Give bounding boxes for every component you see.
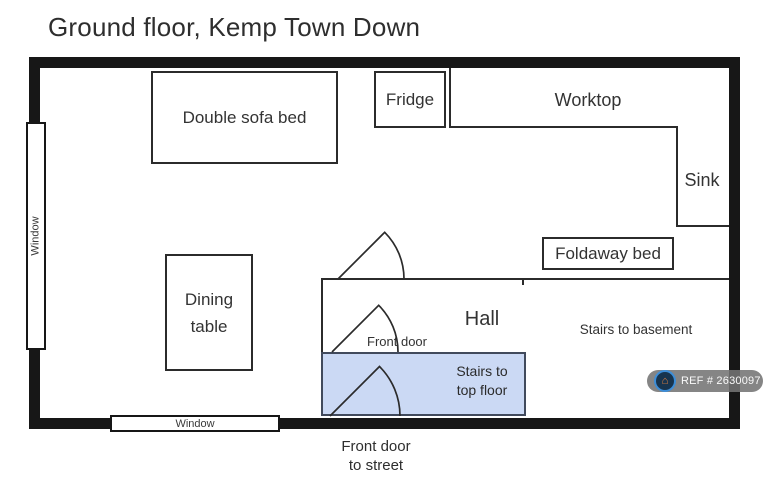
front-door-street-label: Front door to street	[316, 437, 436, 475]
street-door-arc	[330, 367, 400, 417]
front-door-street-line1: Front door	[316, 437, 436, 456]
front-door-street-line2: to street	[316, 456, 436, 475]
house-icon: ⌂	[654, 370, 676, 392]
floorplan-page: Ground floor, Kemp Town Down Double sofa…	[0, 0, 768, 489]
window-bottom: Window	[110, 415, 280, 432]
front-door-label: Front door	[367, 334, 427, 349]
ref-number: REF # 2630097	[681, 375, 761, 387]
window-left: Window	[26, 122, 46, 350]
ref-badge: ⌂ REF # 2630097	[647, 370, 763, 392]
interior-door-arc	[338, 232, 404, 279]
window-left-label: Window	[30, 216, 42, 255]
window-bottom-label: Window	[175, 418, 214, 430]
